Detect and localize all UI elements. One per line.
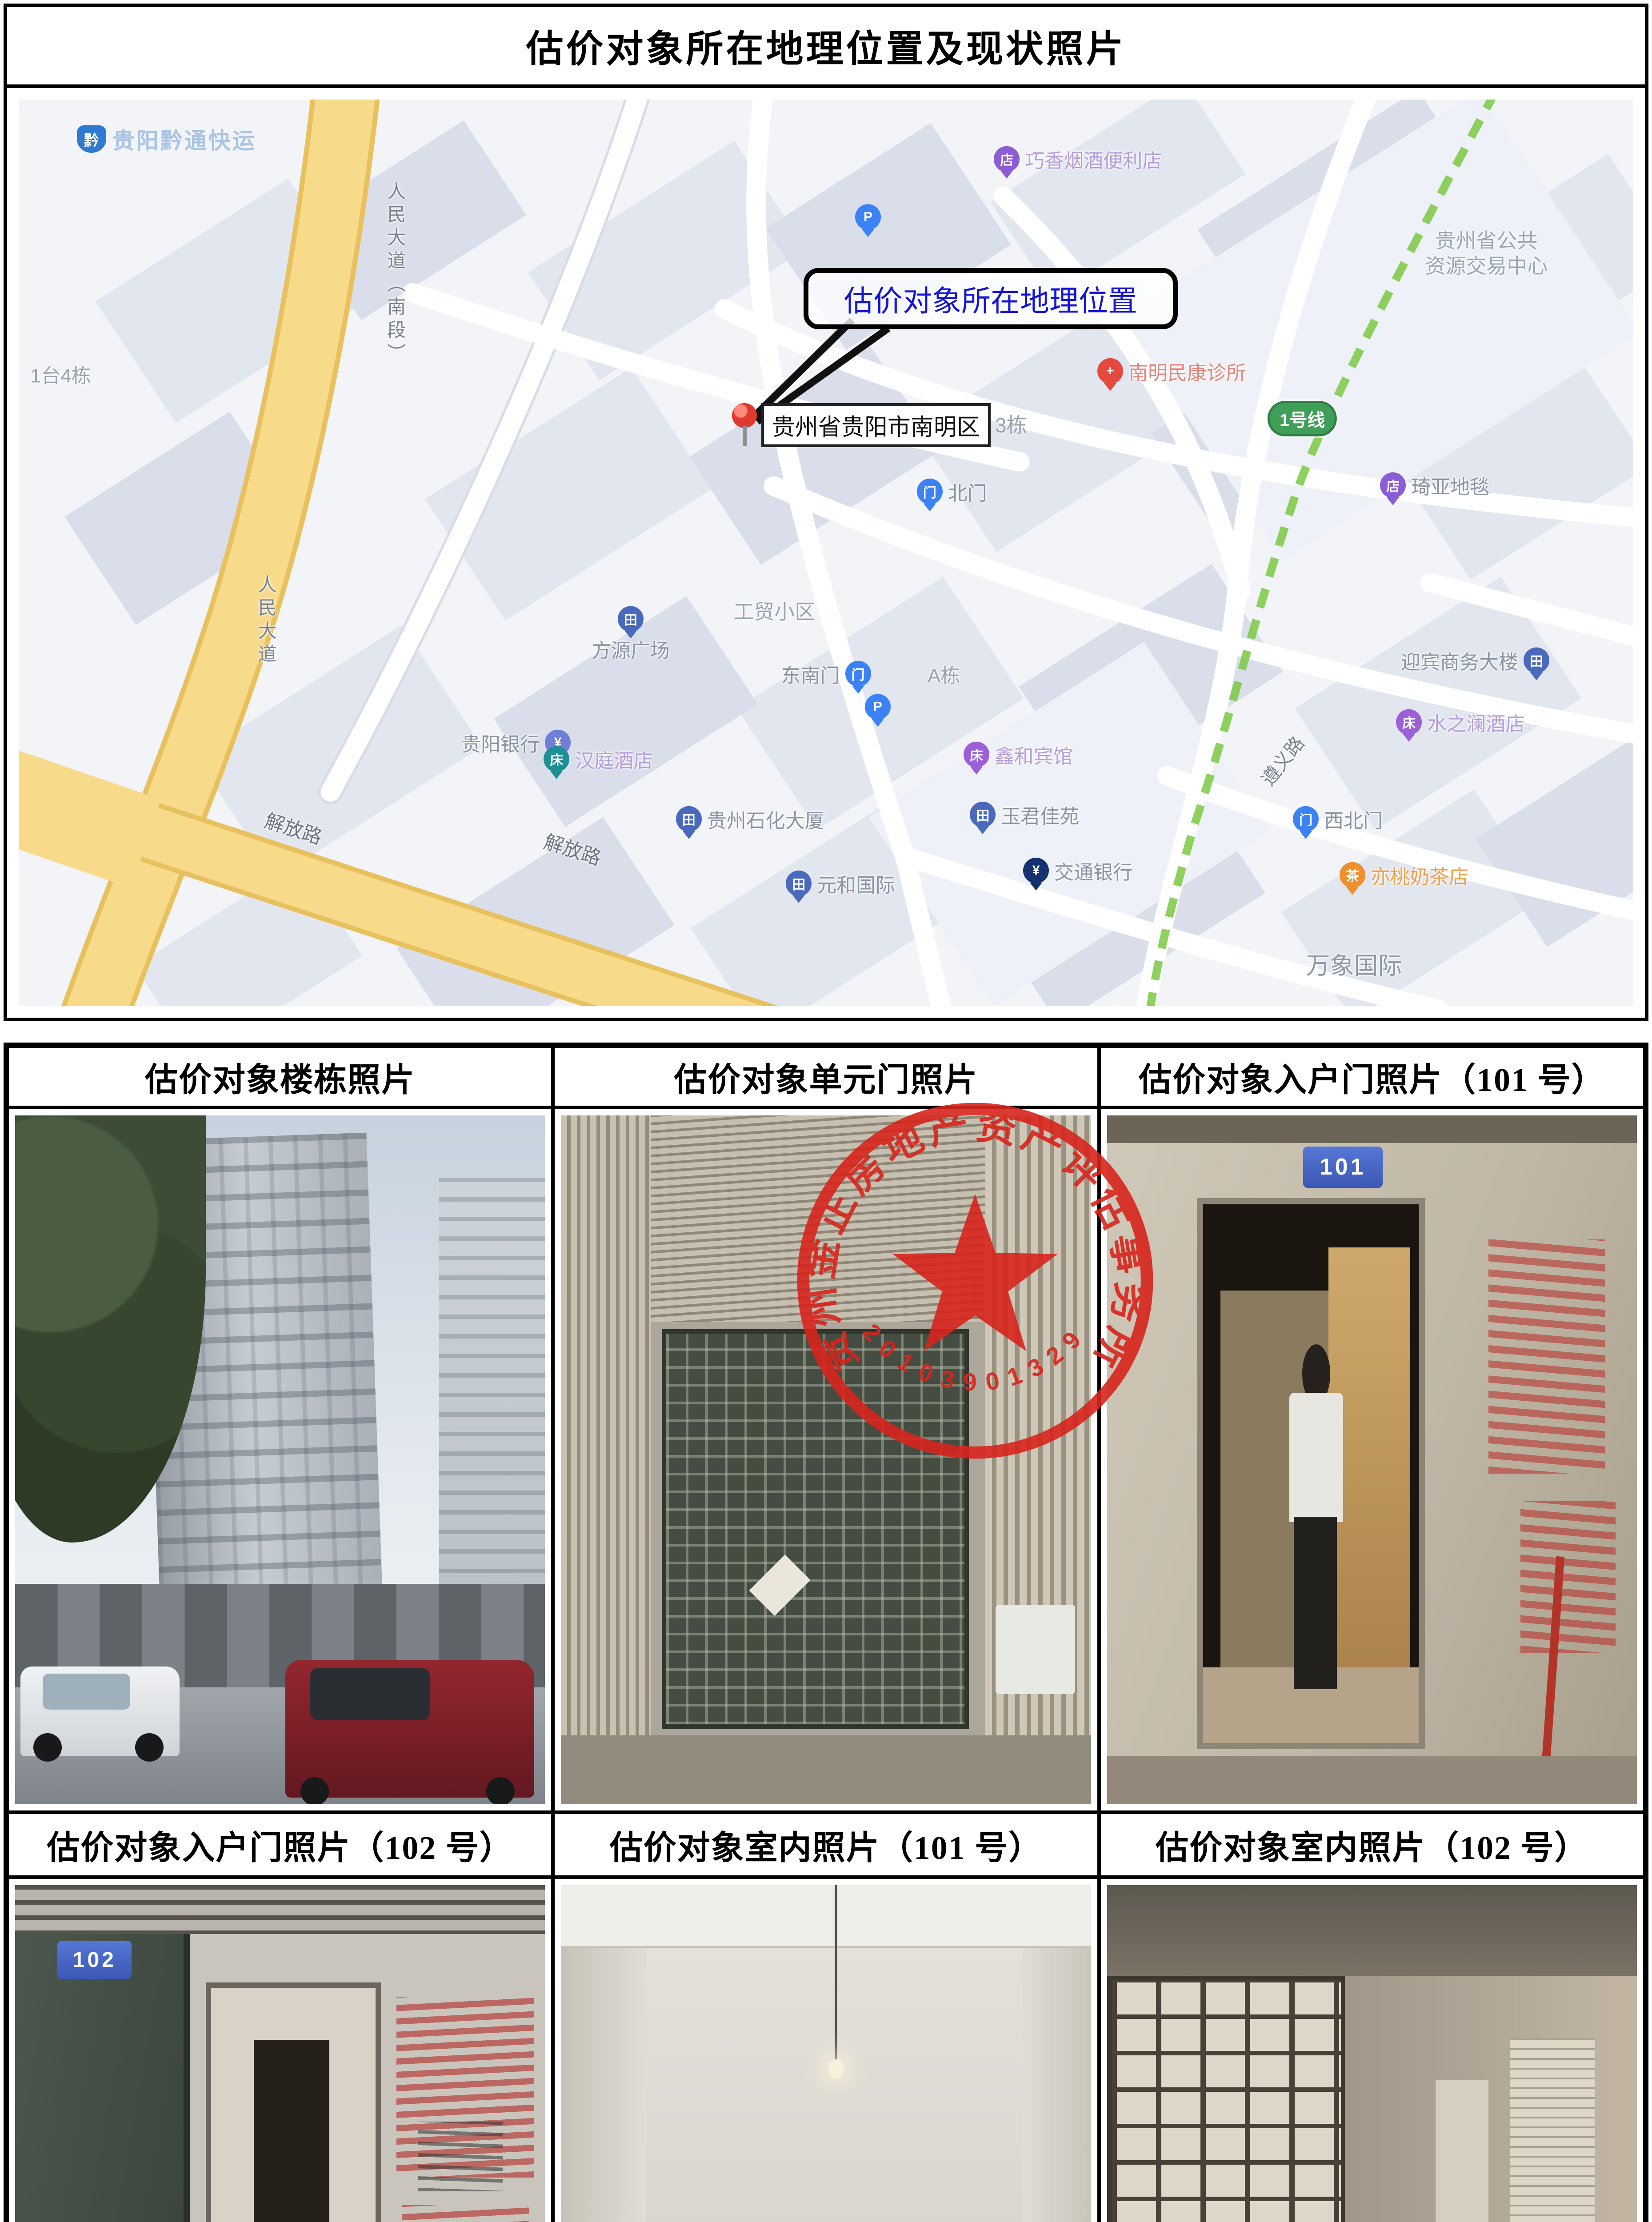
entrance-door-102-photo[interactable]: 102 (15, 1885, 545, 2222)
poi-label: 东南门 (781, 659, 840, 688)
map-poi[interactable]: 茶亦桃奶茶店 (1340, 861, 1468, 889)
poi-label: 巧香烟酒便利店 (1025, 145, 1162, 173)
subject-location-marker[interactable]: 贵州省贵阳市南明区 3栋 (732, 403, 1027, 447)
poi-pin-icon: 田 (1524, 647, 1549, 673)
poi-pin-icon: 田 (618, 606, 644, 632)
caption-entrance-101: 估价对象入户门照片（101 号） (1099, 1046, 1645, 1107)
ceiling (1107, 1115, 1637, 1143)
poi-label: 西北门 (1324, 805, 1383, 833)
caption-interior-101: 估价对象室内照片（101 号） (553, 1812, 1099, 1877)
poi-label: 北门 (948, 477, 987, 506)
building-photo[interactable] (15, 1115, 545, 1804)
poi-pin-icon: 门 (917, 479, 943, 504)
interior-101-photo[interactable] (561, 1885, 1091, 2222)
map-cell: 黔 贵阳黔通快运 1号线 贵州省贵阳市南明区 3栋 估价对象所在地理位置 店巧香… (7, 88, 1645, 1018)
map-area-label: 1台4栋 (30, 364, 91, 388)
poi-pin-icon: 店 (994, 146, 1020, 172)
poi-pin-icon: P (865, 694, 891, 719)
door-opening (1197, 1198, 1425, 1749)
cell-interior-101-photo (553, 1877, 1099, 2222)
poi-label: 琦亚地毯 (1411, 471, 1489, 500)
poi-label: 元和国际 (817, 869, 895, 898)
caption-interior-102: 估价对象室内照片（102 号） (1099, 1812, 1645, 1877)
left-wall (561, 1948, 646, 2222)
map-poi[interactable]: 床汉庭酒店 (544, 745, 653, 773)
map-canvas[interactable]: 黔 贵阳黔通快运 1号线 贵州省贵阳市南明区 3栋 估价对象所在地理位置 店巧香… (19, 100, 1633, 1006)
cell-entrance-102-photo: 102 (7, 1877, 553, 2222)
report-page: 估价对象所在地理位置及现状照片 (0, 0, 1652, 2222)
poi-pin-icon: 门 (1293, 806, 1319, 832)
red-graffiti (1520, 1501, 1616, 1653)
ceiling (1107, 1885, 1637, 1976)
map-poi[interactable]: 田元和国际 (786, 869, 895, 898)
map-poi[interactable]: 田方源广场 (592, 606, 670, 663)
poi-label: 玉君佳苑 (1001, 800, 1079, 829)
map-poi[interactable]: 门北门 (917, 477, 987, 506)
title-row: 估价对象所在地理位置及现状照片 (7, 7, 1645, 88)
car-window (43, 1674, 130, 1710)
map-poi[interactable]: 店琦亚地毯 (1380, 471, 1489, 500)
marker-suffix-label: 3栋 (995, 409, 1027, 439)
caption-entrance-102: 估价对象入户门照片（102 号） (7, 1812, 553, 1877)
poi-label: 南明民康诊所 (1128, 357, 1246, 385)
notice-paper (749, 1555, 810, 1616)
map-area-label: 工贸小区 (733, 599, 815, 625)
map-poi[interactable]: P (865, 694, 891, 719)
wheel (135, 1733, 164, 1762)
map-area-label: A栋 (928, 664, 960, 688)
map-area-label: 贵州省公共 资源交易中心 (1425, 228, 1548, 279)
ceiling (561, 1885, 1091, 1948)
poi-label: 贵州石化大厦 (707, 805, 824, 833)
poi-pin-icon: 床 (1396, 709, 1422, 735)
marker-address-label: 贵州省贵阳市南明区 (761, 403, 991, 447)
poi-pin-icon: 床 (544, 746, 569, 772)
caption-building: 估价对象楼栋照片 (7, 1046, 553, 1107)
page-title: 估价对象所在地理位置及现状照片 (526, 19, 1126, 73)
dark-graffiti (418, 2122, 503, 2191)
poi-pin-icon: 田 (970, 802, 996, 827)
dark-doorway (254, 2040, 329, 2222)
cell-entrance-101-photo: 101 (1099, 1107, 1645, 1812)
right-wall (1022, 1948, 1091, 2222)
interior-102-photo[interactable] (1107, 1885, 1637, 2222)
poi-pin-icon: 床 (964, 742, 989, 767)
map-watermark: 黔 贵阳黔通快运 (77, 123, 256, 155)
person-legs (1294, 1517, 1337, 1689)
poi-pin-icon: + (1097, 358, 1123, 384)
map-poi[interactable]: 田贵州石化大厦 (676, 805, 824, 833)
ceiling-pipes (15, 1885, 545, 1934)
poi-pin-icon: 田 (676, 806, 702, 832)
poi-pin-icon: 茶 (1340, 862, 1365, 888)
poi-label: 迎宾商务大楼 (1401, 646, 1518, 675)
map-poi[interactable]: 床鑫和宾馆 (964, 740, 1073, 769)
hallway (206, 1982, 380, 2222)
entrance-door-101-photo[interactable]: 101 (1107, 1115, 1637, 1804)
red-graffiti (1488, 1239, 1605, 1474)
wheel (486, 1777, 515, 1804)
cell-building-photo (7, 1107, 553, 1812)
watermark-label: 贵阳黔通快运 (112, 123, 256, 155)
red-suv (285, 1660, 534, 1798)
poi-pin-icon: 门 (845, 661, 871, 687)
red-graffiti (402, 2205, 529, 2222)
map-poi[interactable]: P (855, 204, 881, 230)
seal-star-icon (892, 1194, 1058, 1351)
map-poi[interactable]: +南明民康诊所 (1097, 357, 1246, 385)
map-poi[interactable]: 迎宾商务大楼田 (1401, 646, 1549, 675)
poi-label: 汉庭酒店 (575, 745, 653, 773)
map-poi[interactable]: 门西北门 (1293, 805, 1383, 833)
company-seal-stamp: 贵州金正房地产资产评估事务所 5201039013292 (777, 1083, 1173, 1479)
poi-label: 鑫和宾馆 (995, 740, 1073, 769)
map-poi[interactable]: 田玉君佳苑 (970, 800, 1079, 829)
map-poi[interactable]: ¥交通银行 (1023, 856, 1132, 885)
door-plate-102: 102 (57, 1941, 132, 1979)
map-poi[interactable]: 东南门门 (781, 659, 871, 688)
door-plate-101: 101 (1303, 1147, 1383, 1188)
wall-paper (1436, 2080, 1488, 2222)
far-building (439, 1178, 545, 1619)
map-road-label: 人民大道（南段） (383, 181, 407, 366)
poi-label: 亦桃奶茶店 (1371, 861, 1468, 889)
wheel (300, 1777, 329, 1804)
white-car (20, 1666, 180, 1756)
window-wall (1107, 1976, 1346, 2222)
calligraphy-scroll (1510, 2038, 1595, 2222)
metro-line1-badge[interactable]: 1号线 (1268, 401, 1337, 436)
map-area-label: 万象国际 (1306, 951, 1402, 981)
red-pin-icon (732, 403, 757, 446)
location-table: 估价对象所在地理位置及现状照片 (4, 4, 1648, 1021)
poi-pin-icon: 田 (786, 871, 812, 896)
poi-pin-icon: 店 (1380, 472, 1406, 498)
person-shirt (1289, 1393, 1343, 1522)
poi-pin-icon: ¥ (1023, 858, 1049, 883)
car-window (310, 1668, 430, 1720)
left-column (561, 1115, 651, 1804)
map-poi[interactable]: 床水之澜酒店 (1396, 707, 1525, 736)
light-bulb (828, 2059, 844, 2079)
ground (561, 1735, 1091, 1804)
location-callout: 估价对象所在地理位置 (804, 268, 1178, 329)
poi-label: 贵阳银行 (461, 728, 540, 757)
bulb-wire (835, 1885, 837, 2066)
poi-label: 水之澜酒店 (1427, 707, 1525, 736)
poi-label: 交通银行 (1054, 856, 1132, 885)
courier-logo-icon: 黔 (77, 125, 106, 153)
map-poi[interactable]: 店巧香烟酒便利店 (994, 145, 1162, 173)
wheel (33, 1733, 62, 1762)
callout-text: 估价对象所在地理位置 (844, 277, 1137, 320)
map-road-label: 人民大道 (254, 575, 278, 667)
cell-interior-102-photo (1099, 1877, 1645, 2222)
floor (1107, 1756, 1637, 1805)
meter-box (996, 1605, 1075, 1694)
poi-pin-icon: P (855, 204, 881, 230)
